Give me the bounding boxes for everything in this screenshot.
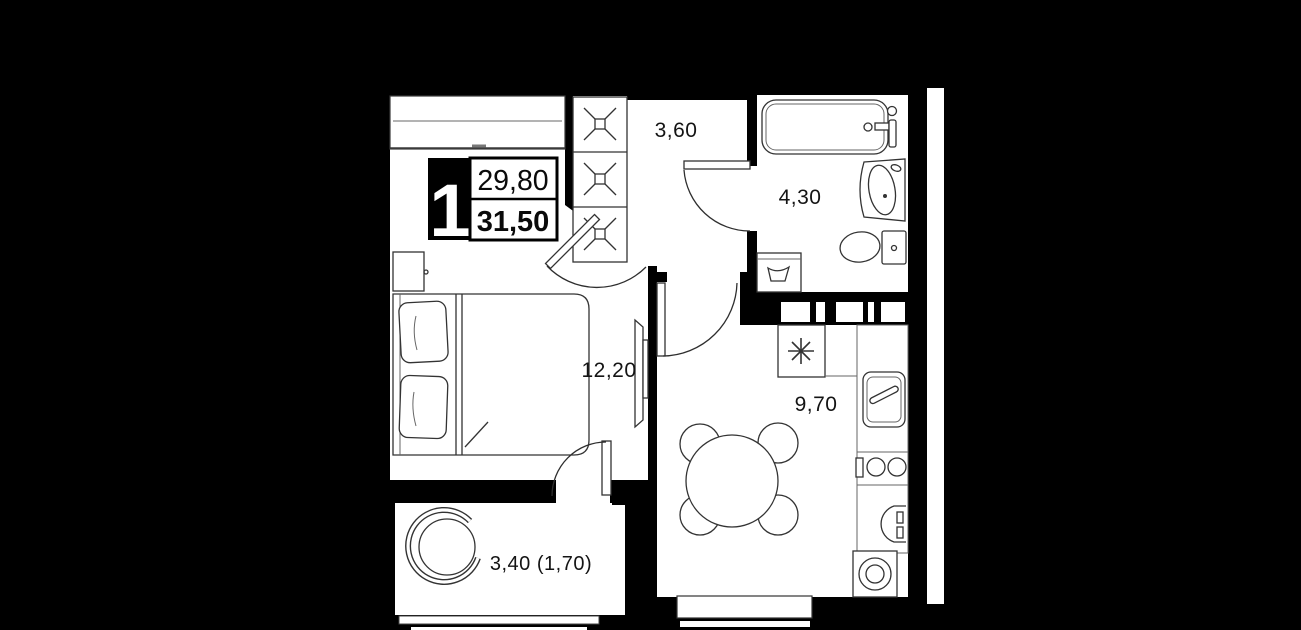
neighbor-wall-strip — [927, 88, 944, 604]
wall — [385, 480, 556, 503]
balcony-window — [399, 616, 599, 624]
faucet-handle — [875, 123, 889, 130]
wall — [625, 505, 657, 630]
bathtub — [762, 100, 888, 154]
toilet-tank — [882, 231, 906, 264]
kitchen-area-label: 9,70 — [795, 393, 838, 416]
wall — [740, 272, 757, 325]
area-top-value: 29,80 — [477, 165, 548, 197]
wall — [648, 266, 657, 492]
sink-pedestal — [860, 159, 905, 221]
cooktop-panel — [856, 458, 863, 477]
balcony-door-leaf — [602, 441, 611, 495]
unit-info-card: 1 29,80 31,50 — [428, 158, 557, 252]
bathroom-door-leaf — [684, 161, 750, 169]
kitchen-doorway-floor — [667, 272, 740, 282]
wall — [747, 95, 757, 166]
wall — [612, 480, 657, 505]
bedroom-window — [390, 96, 565, 149]
nightstand — [393, 252, 424, 291]
bathroom-area-label: 4,30 — [779, 186, 822, 209]
wall — [565, 95, 573, 205]
bedroom-area-label: 12,20 — [581, 359, 636, 382]
shaft-niche — [781, 302, 810, 322]
dining-table — [686, 435, 778, 527]
wall — [627, 90, 747, 100]
area-bottom-value: 31,50 — [477, 206, 550, 238]
floor-plan: 3,60 4,30 12,20 9,70 3,40 (1,70) 1 29,80… — [0, 0, 1301, 630]
kitchen-window-band — [680, 621, 810, 627]
hallway-area-label: 3,60 — [655, 119, 698, 142]
shaft-niche — [816, 302, 825, 322]
room-count: 1 — [429, 169, 470, 252]
wall — [385, 503, 395, 620]
bathroom-doorway-floor — [747, 166, 757, 231]
kitchen-window-bay — [677, 596, 812, 618]
balcony — [408, 510, 478, 582]
faucet-knob — [888, 107, 897, 116]
shaft-niche — [881, 302, 905, 322]
pillow — [398, 301, 448, 363]
sink-drain — [883, 194, 887, 198]
shaft-niche — [836, 302, 863, 322]
faucet-pipe — [889, 120, 896, 147]
tv — [643, 340, 648, 398]
wall-exterior-right — [908, 88, 926, 600]
armchair-seat — [419, 519, 475, 575]
shaft-niche — [868, 302, 874, 322]
kitchen-door-leaf — [657, 283, 665, 356]
balcony-area-label: 3,40 (1,70) — [490, 553, 592, 575]
pillow — [399, 375, 448, 439]
